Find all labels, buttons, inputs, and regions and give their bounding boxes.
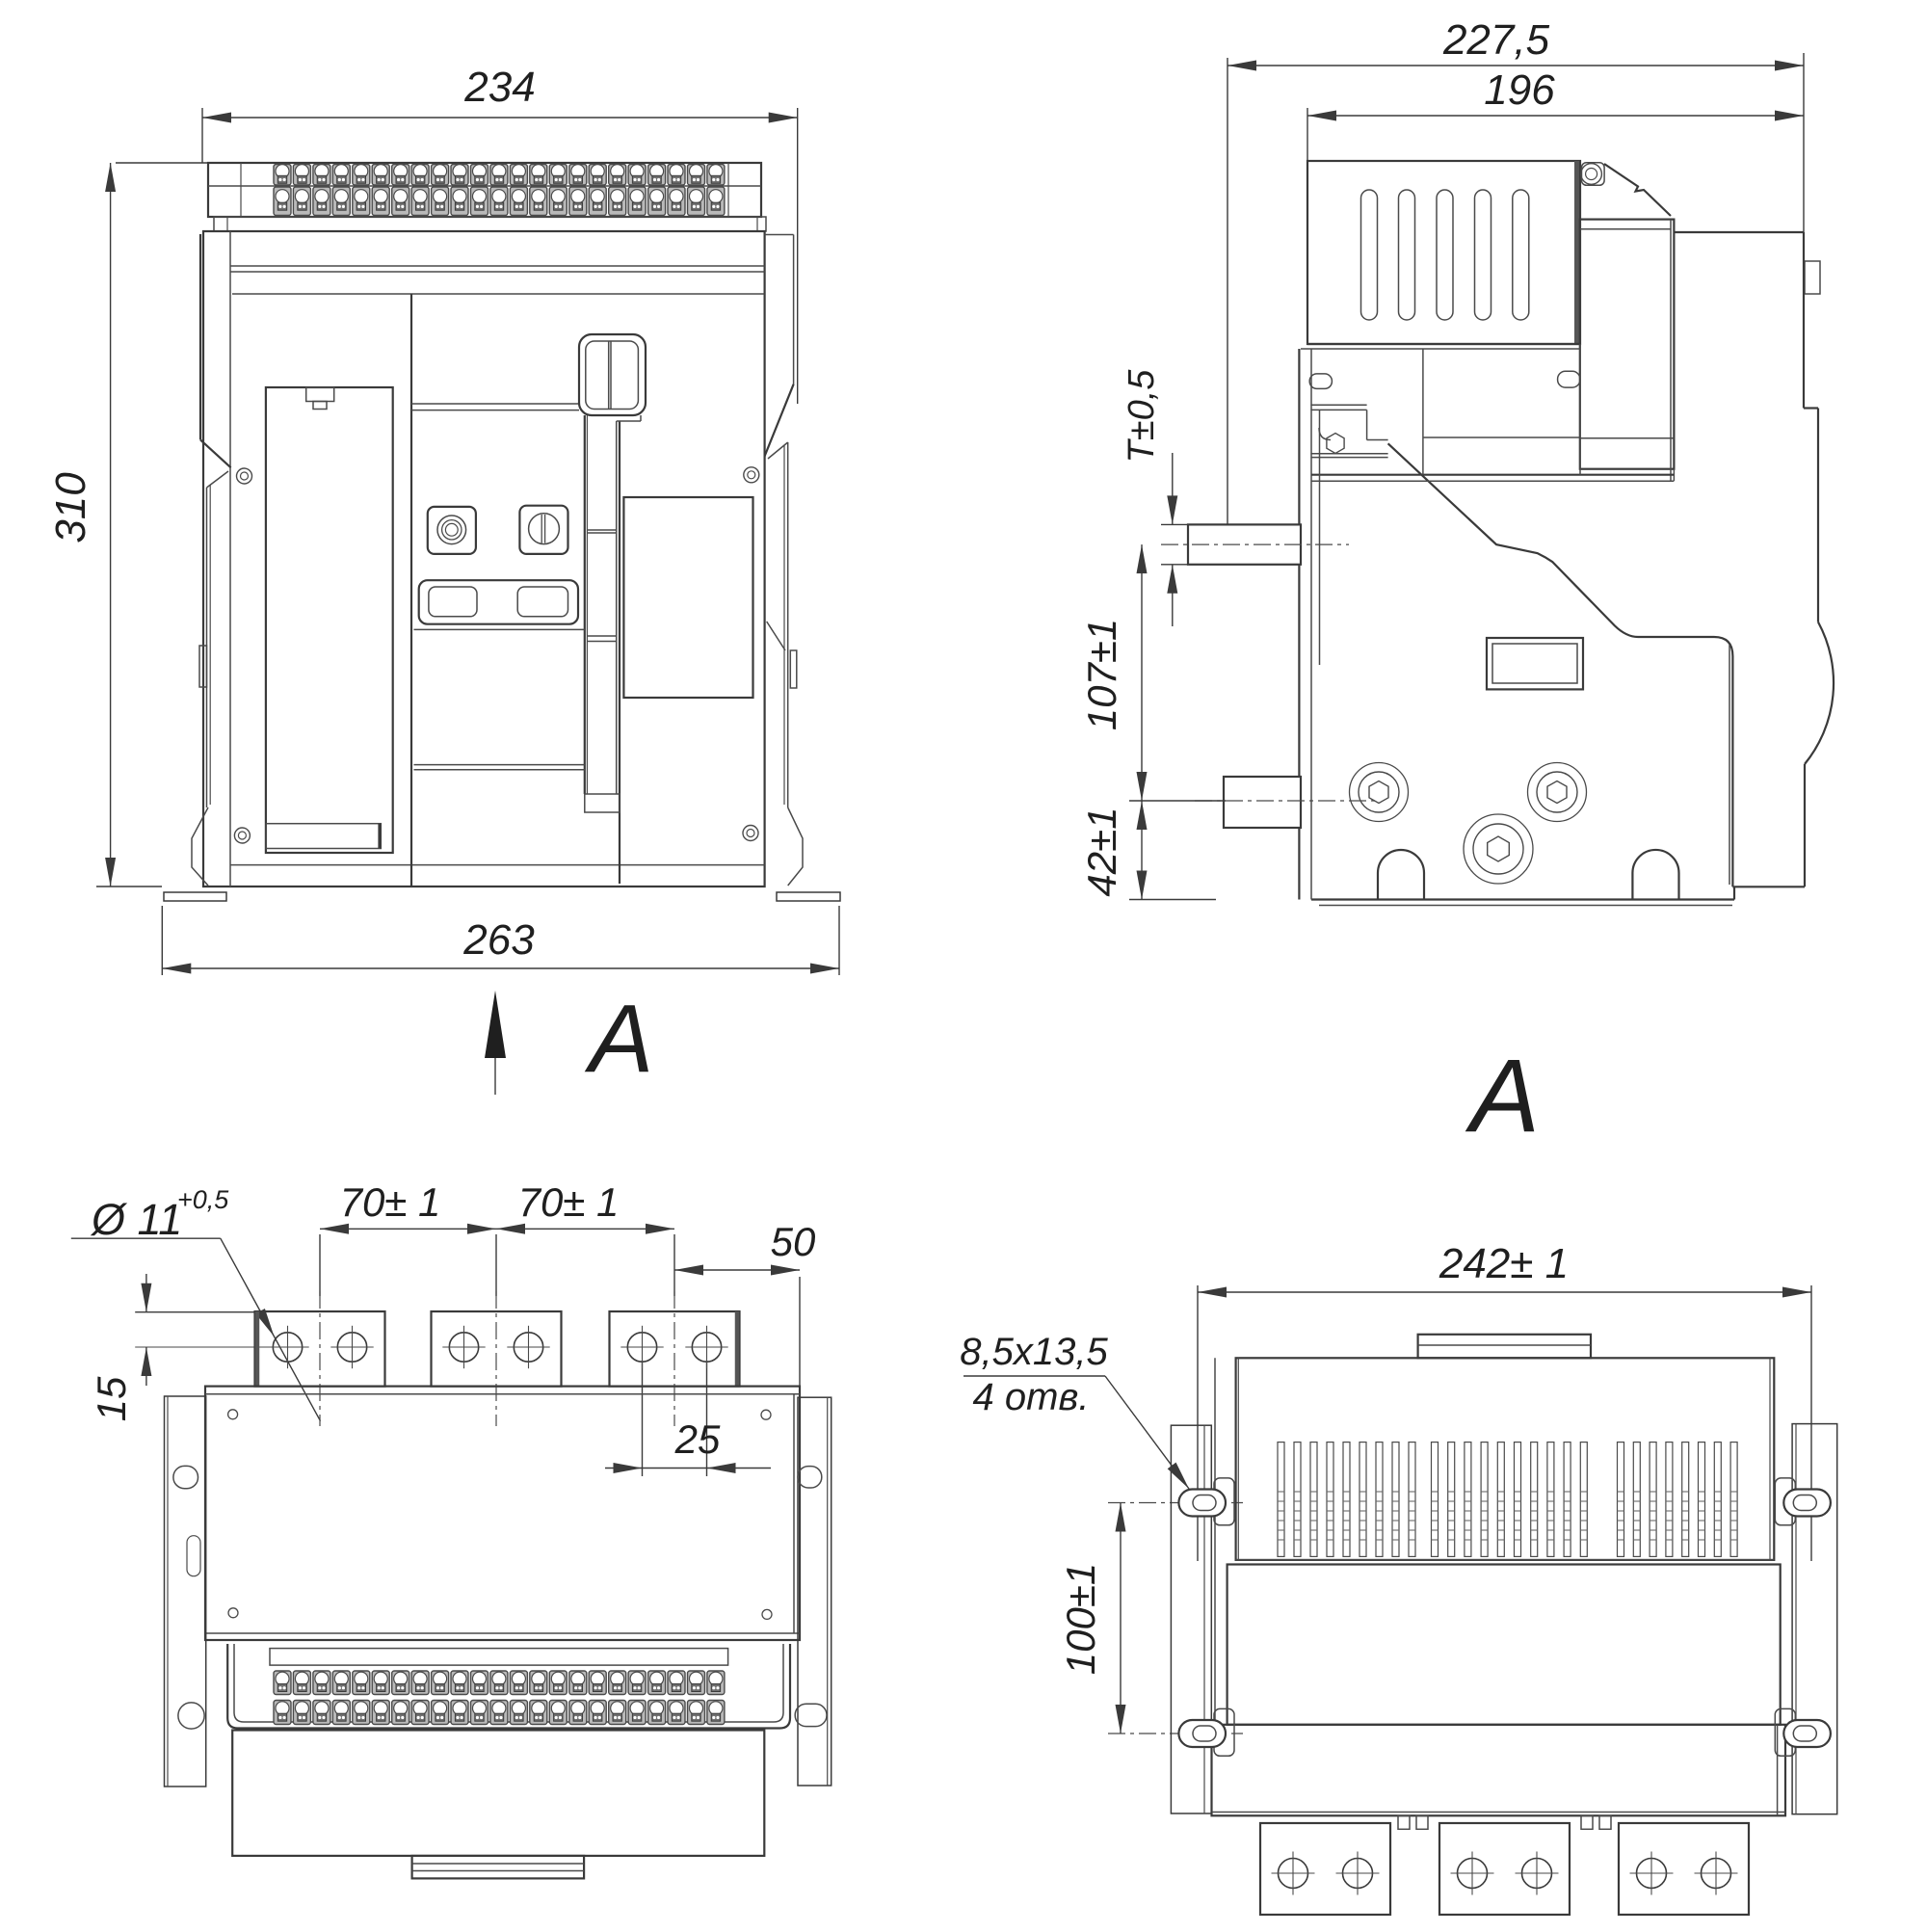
svg-text:Ø 11: Ø 11 <box>90 1195 182 1244</box>
svg-text:263: 263 <box>462 916 535 964</box>
svg-text:196: 196 <box>1484 66 1555 114</box>
svg-text:227,5: 227,5 <box>1442 16 1550 64</box>
svg-text:242± 1: 242± 1 <box>1439 1240 1569 1287</box>
svg-text:42±1: 42±1 <box>1079 807 1124 896</box>
svg-text:234: 234 <box>463 64 535 111</box>
svg-text:107±1: 107±1 <box>1079 619 1124 730</box>
svg-text:A: A <box>1465 1037 1540 1153</box>
svg-text:4 отв.: 4 отв. <box>973 1376 1090 1418</box>
svg-text:70± 1: 70± 1 <box>518 1179 620 1225</box>
svg-text:100±1: 100±1 <box>1058 1563 1103 1675</box>
svg-text:70± 1: 70± 1 <box>340 1179 441 1225</box>
svg-text:+0,5: +0,5 <box>177 1185 229 1214</box>
svg-text:15: 15 <box>89 1376 134 1421</box>
svg-text:T±0,5: T±0,5 <box>1122 369 1162 463</box>
svg-text:8,5x13,5: 8,5x13,5 <box>960 1331 1108 1373</box>
svg-text:25: 25 <box>674 1416 721 1462</box>
svg-text:50: 50 <box>771 1219 816 1264</box>
svg-text:310: 310 <box>47 472 94 543</box>
svg-text:A: A <box>585 985 654 1093</box>
